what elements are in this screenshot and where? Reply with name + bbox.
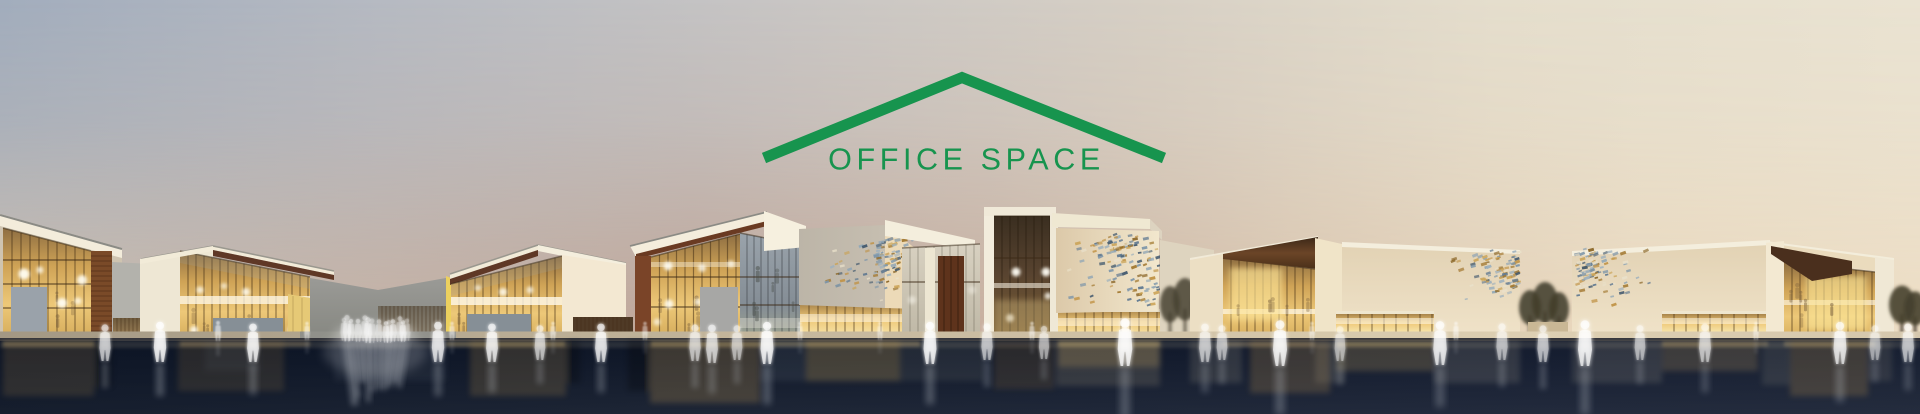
svg-text:OFFICE SPACE: OFFICE SPACE [828, 143, 1105, 177]
